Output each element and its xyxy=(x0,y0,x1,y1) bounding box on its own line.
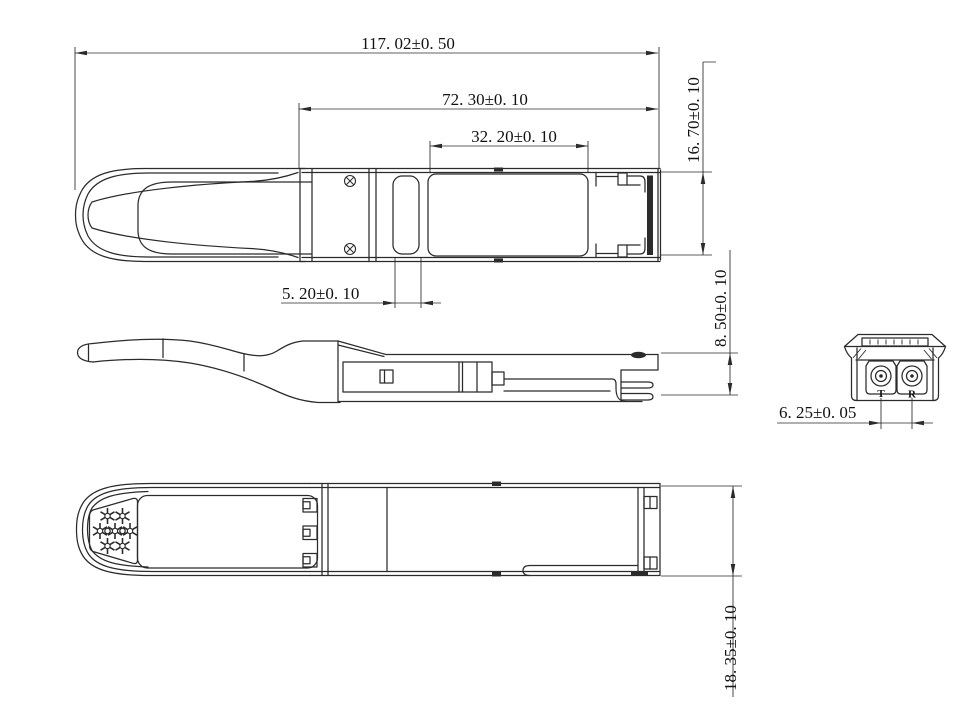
slider-housing xyxy=(343,362,492,392)
bottom-rear-bracket xyxy=(523,488,657,577)
dim-latch-slot-label: 5. 20±0. 10 xyxy=(282,284,359,303)
bottom-view xyxy=(77,482,661,577)
dim-body-width: 18. 35±0. 10 xyxy=(661,486,742,697)
lc-ferrule-rx xyxy=(902,366,922,386)
dim-rear-height-label: 8. 50±0. 10 xyxy=(711,270,730,347)
end-view: T R xyxy=(845,335,946,401)
dim-port-pitch-label: 6. 25±0. 05 xyxy=(779,403,856,422)
bottom-inner-outline xyxy=(83,488,661,572)
knurl-star-icon xyxy=(101,538,115,554)
bail-inner-outline xyxy=(83,173,278,257)
bail-tongue xyxy=(138,182,312,254)
dim-end-width: 16. 70±0. 10 xyxy=(661,62,716,255)
side-view xyxy=(78,339,659,403)
dim-rear-height: 8. 50±0. 10 xyxy=(661,250,738,395)
latch-clip xyxy=(380,370,504,385)
tab-tip xyxy=(78,344,94,363)
dim-overall-length-label: 117. 02±0. 50 xyxy=(361,34,455,53)
latch-bump xyxy=(494,168,503,172)
screw-icon xyxy=(345,176,356,187)
end-top-cap xyxy=(845,335,946,347)
body-edges xyxy=(300,169,660,262)
drawing-canvas: T R 117. 02±0. 50 72. 30±0. 10 32. 20±0.… xyxy=(0,0,956,705)
knurl-star-icon xyxy=(101,508,115,524)
end-cage xyxy=(596,169,661,262)
plate-clips xyxy=(303,499,317,568)
latch-bump-side xyxy=(631,352,646,358)
dim-body-width-label: 18. 35±0. 10 xyxy=(721,605,740,691)
knurl-star-icon xyxy=(116,508,130,524)
body-seams xyxy=(300,169,376,262)
recess-ticks xyxy=(870,340,918,345)
bottom-seams xyxy=(322,484,387,576)
latch-bump xyxy=(492,482,501,487)
dim-label-window: 32. 20±0. 10 xyxy=(430,127,588,173)
bottom-body-edges xyxy=(310,484,660,576)
tab-top-curve xyxy=(93,339,338,356)
latch-bump xyxy=(494,259,503,263)
knurl-pattern xyxy=(93,508,137,554)
latch-bump xyxy=(492,572,501,577)
slider-seams xyxy=(459,362,477,392)
tab-bottom-curve xyxy=(93,359,340,402)
knurl-star-icon xyxy=(116,538,130,554)
port-label-rx: R xyxy=(908,389,917,401)
screw-icon xyxy=(345,244,356,255)
dim-end-width-label: 16. 70±0. 10 xyxy=(684,77,703,163)
shoulder-chamfers xyxy=(853,349,937,360)
rear-step xyxy=(621,355,658,383)
slide-bar xyxy=(504,379,626,402)
dim-latch-slot: 5. 20±0. 10 xyxy=(281,257,441,308)
dim-housing-length-label: 72. 30±0. 10 xyxy=(442,90,528,109)
bottom-plate xyxy=(138,496,318,569)
bail-opening xyxy=(88,173,298,258)
dim-overall-length: 117. 02±0. 50 xyxy=(75,34,659,190)
transceiver-drawing: T R 117. 02±0. 50 72. 30±0. 10 32. 20±0.… xyxy=(0,0,956,705)
dim-port-pitch: 6. 25±0. 05 xyxy=(777,398,933,429)
knurl-dot-icon xyxy=(105,528,110,533)
top-view xyxy=(76,168,661,263)
lc-ferrule-tx xyxy=(871,366,891,386)
label-window xyxy=(428,174,588,256)
dim-label-window-label: 32. 20±0. 10 xyxy=(471,127,557,146)
latch-slider xyxy=(393,176,419,254)
knurl-dot-icon xyxy=(120,528,125,533)
rear-pins xyxy=(621,382,653,400)
